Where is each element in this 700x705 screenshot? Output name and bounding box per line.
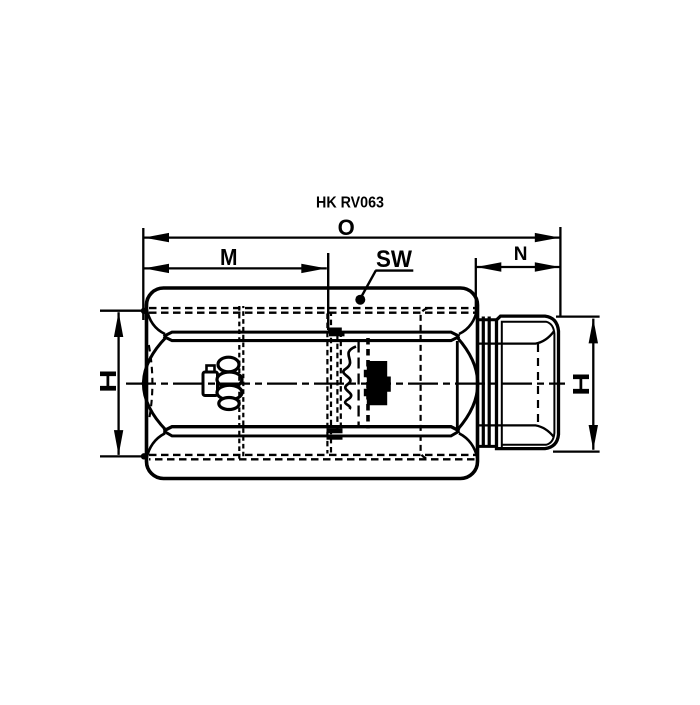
svg-text:H: H [95, 369, 121, 393]
svg-text:H: H [568, 372, 594, 396]
svg-text:SW: SW [376, 246, 412, 273]
svg-text:O: O [338, 215, 355, 240]
svg-text:M: M [220, 244, 238, 270]
svg-text:HK RV063: HK RV063 [316, 195, 384, 212]
svg-text:N: N [514, 244, 528, 265]
